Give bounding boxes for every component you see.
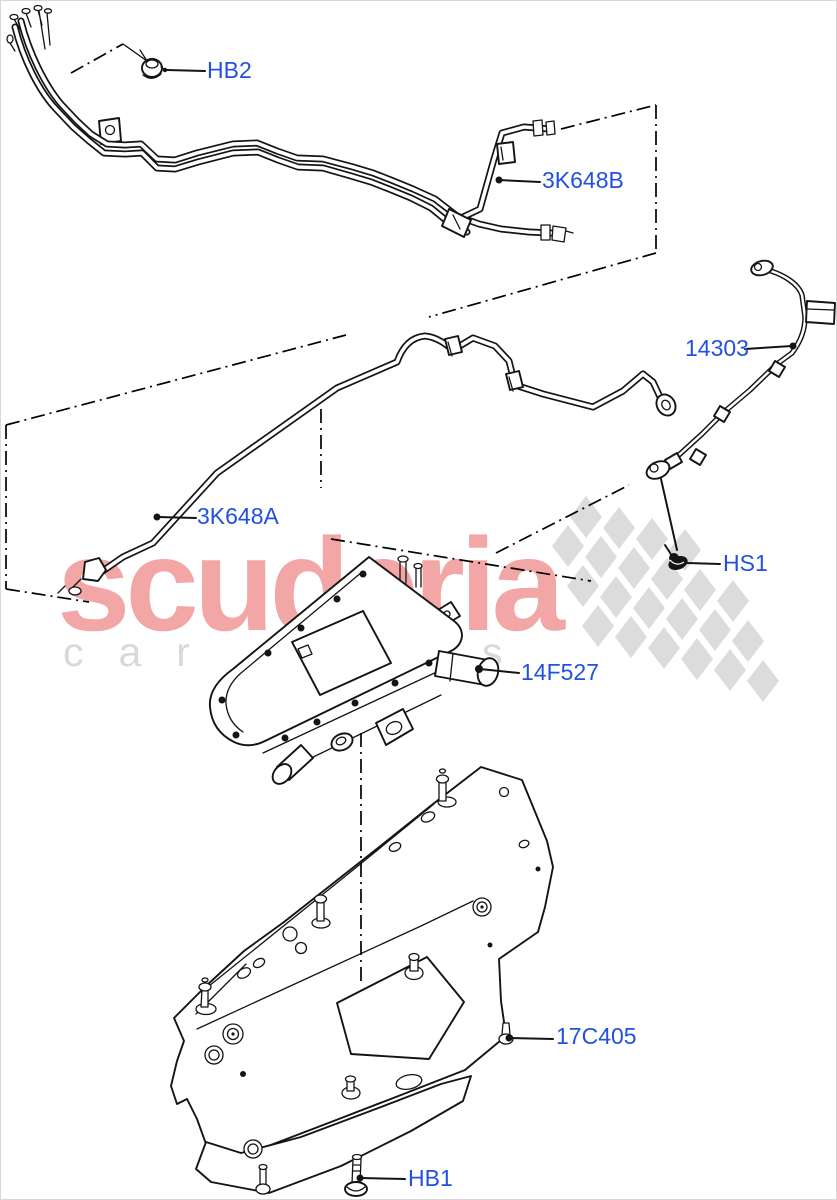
fuel-pipes-rear-drawing bbox=[7, 6, 573, 243]
exploded-diagram bbox=[1, 1, 837, 1200]
parts-diagram-page: scuderia car parts bbox=[0, 0, 837, 1200]
heater-module-drawing bbox=[210, 556, 501, 788]
part-label-14303[interactable]: 14303 bbox=[685, 337, 749, 360]
part-label-hb1[interactable]: HB1 bbox=[408, 1167, 453, 1190]
part-label-3k648b[interactable]: 3K648B bbox=[542, 169, 624, 192]
grommet-hb2-drawing bbox=[140, 50, 167, 78]
part-label-hb2[interactable]: HB2 bbox=[207, 59, 252, 82]
part-label-17c405[interactable]: 17C405 bbox=[556, 1025, 637, 1048]
mounting-bracket-drawing bbox=[171, 767, 553, 1196]
part-label-3k648a[interactable]: 3K648A bbox=[197, 505, 279, 528]
part-label-14f527[interactable]: 14F527 bbox=[521, 661, 599, 684]
part-label-hs1[interactable]: HS1 bbox=[723, 552, 768, 575]
